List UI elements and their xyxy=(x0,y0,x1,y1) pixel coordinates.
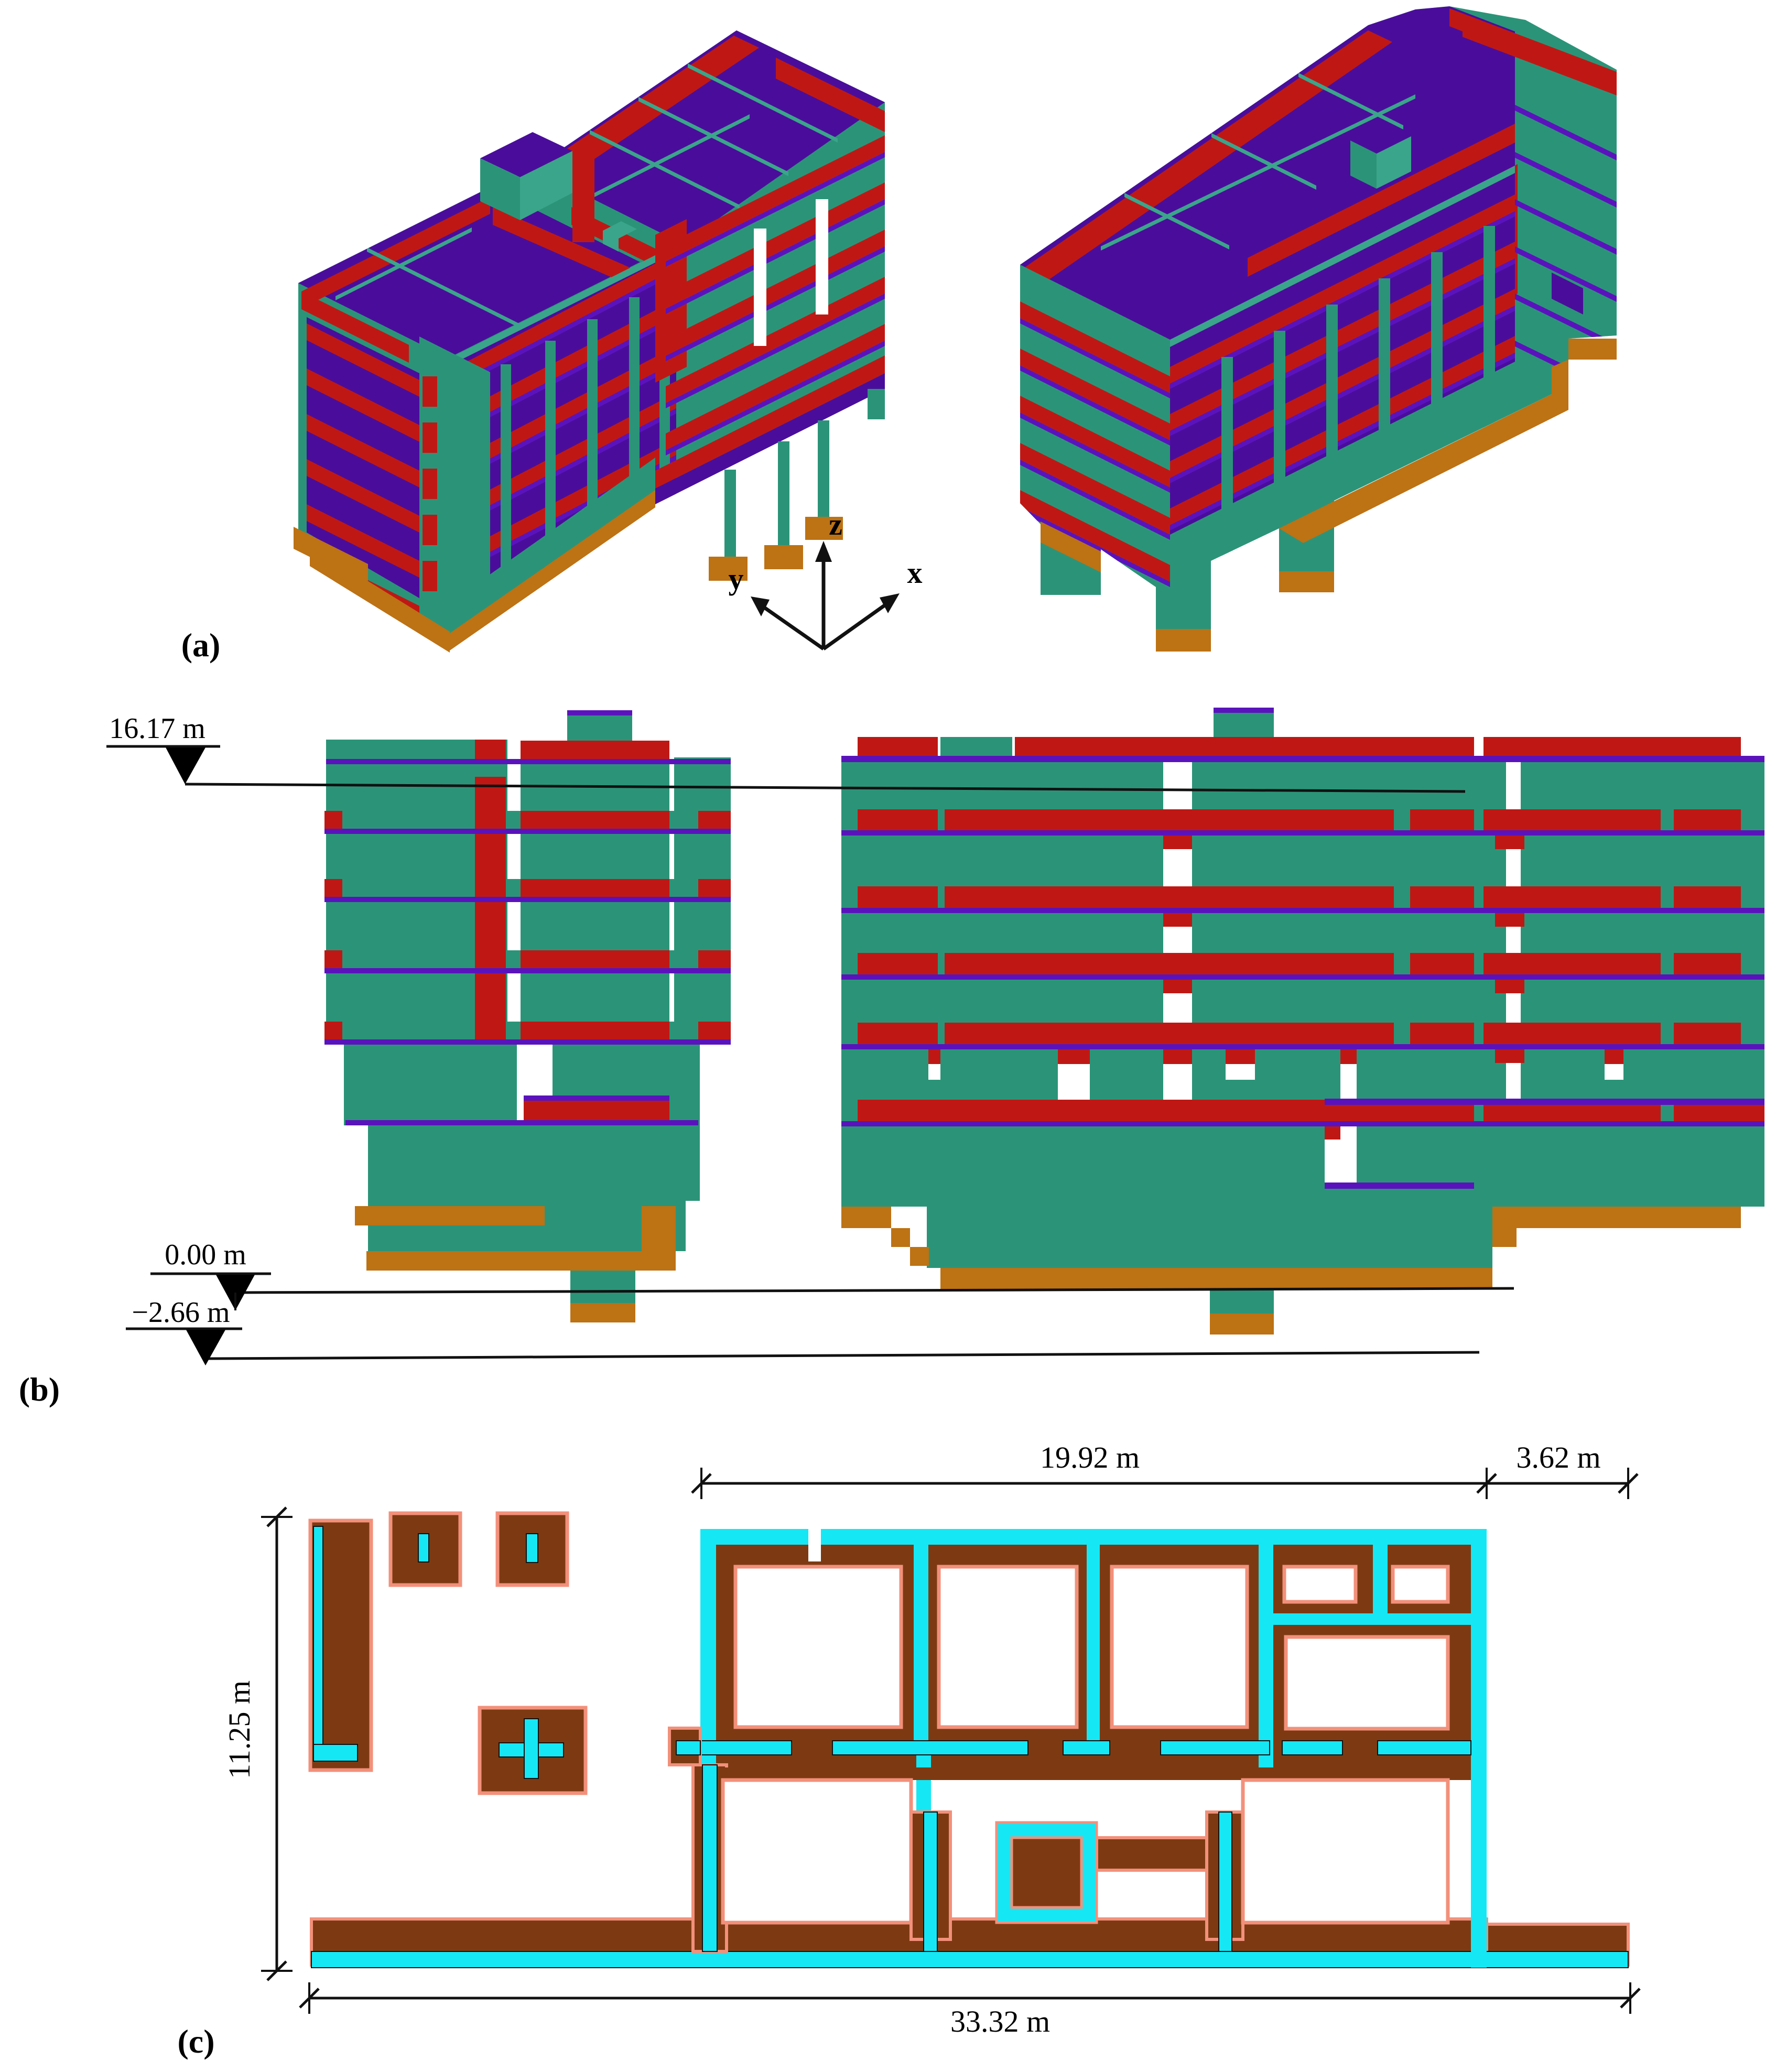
svg-text:y: y xyxy=(729,562,744,596)
svg-text:−2.66 m: −2.66 m xyxy=(132,1296,230,1329)
svg-text:(c): (c) xyxy=(177,2023,214,2060)
svg-text:0.00 m: 0.00 m xyxy=(165,1239,246,1271)
svg-text:(a): (a) xyxy=(181,626,221,664)
svg-text:11.25 m: 11.25 m xyxy=(222,1680,256,1779)
svg-text:x: x xyxy=(907,556,923,590)
svg-text:3.62 m: 3.62 m xyxy=(1516,1440,1600,1474)
svg-text:19.92 m: 19.92 m xyxy=(1040,1440,1140,1474)
svg-text:z: z xyxy=(829,507,842,541)
svg-text:16.17 m: 16.17 m xyxy=(109,712,205,745)
svg-text:(b): (b) xyxy=(19,1371,60,1408)
svg-text:33.32 m: 33.32 m xyxy=(950,2004,1050,2038)
